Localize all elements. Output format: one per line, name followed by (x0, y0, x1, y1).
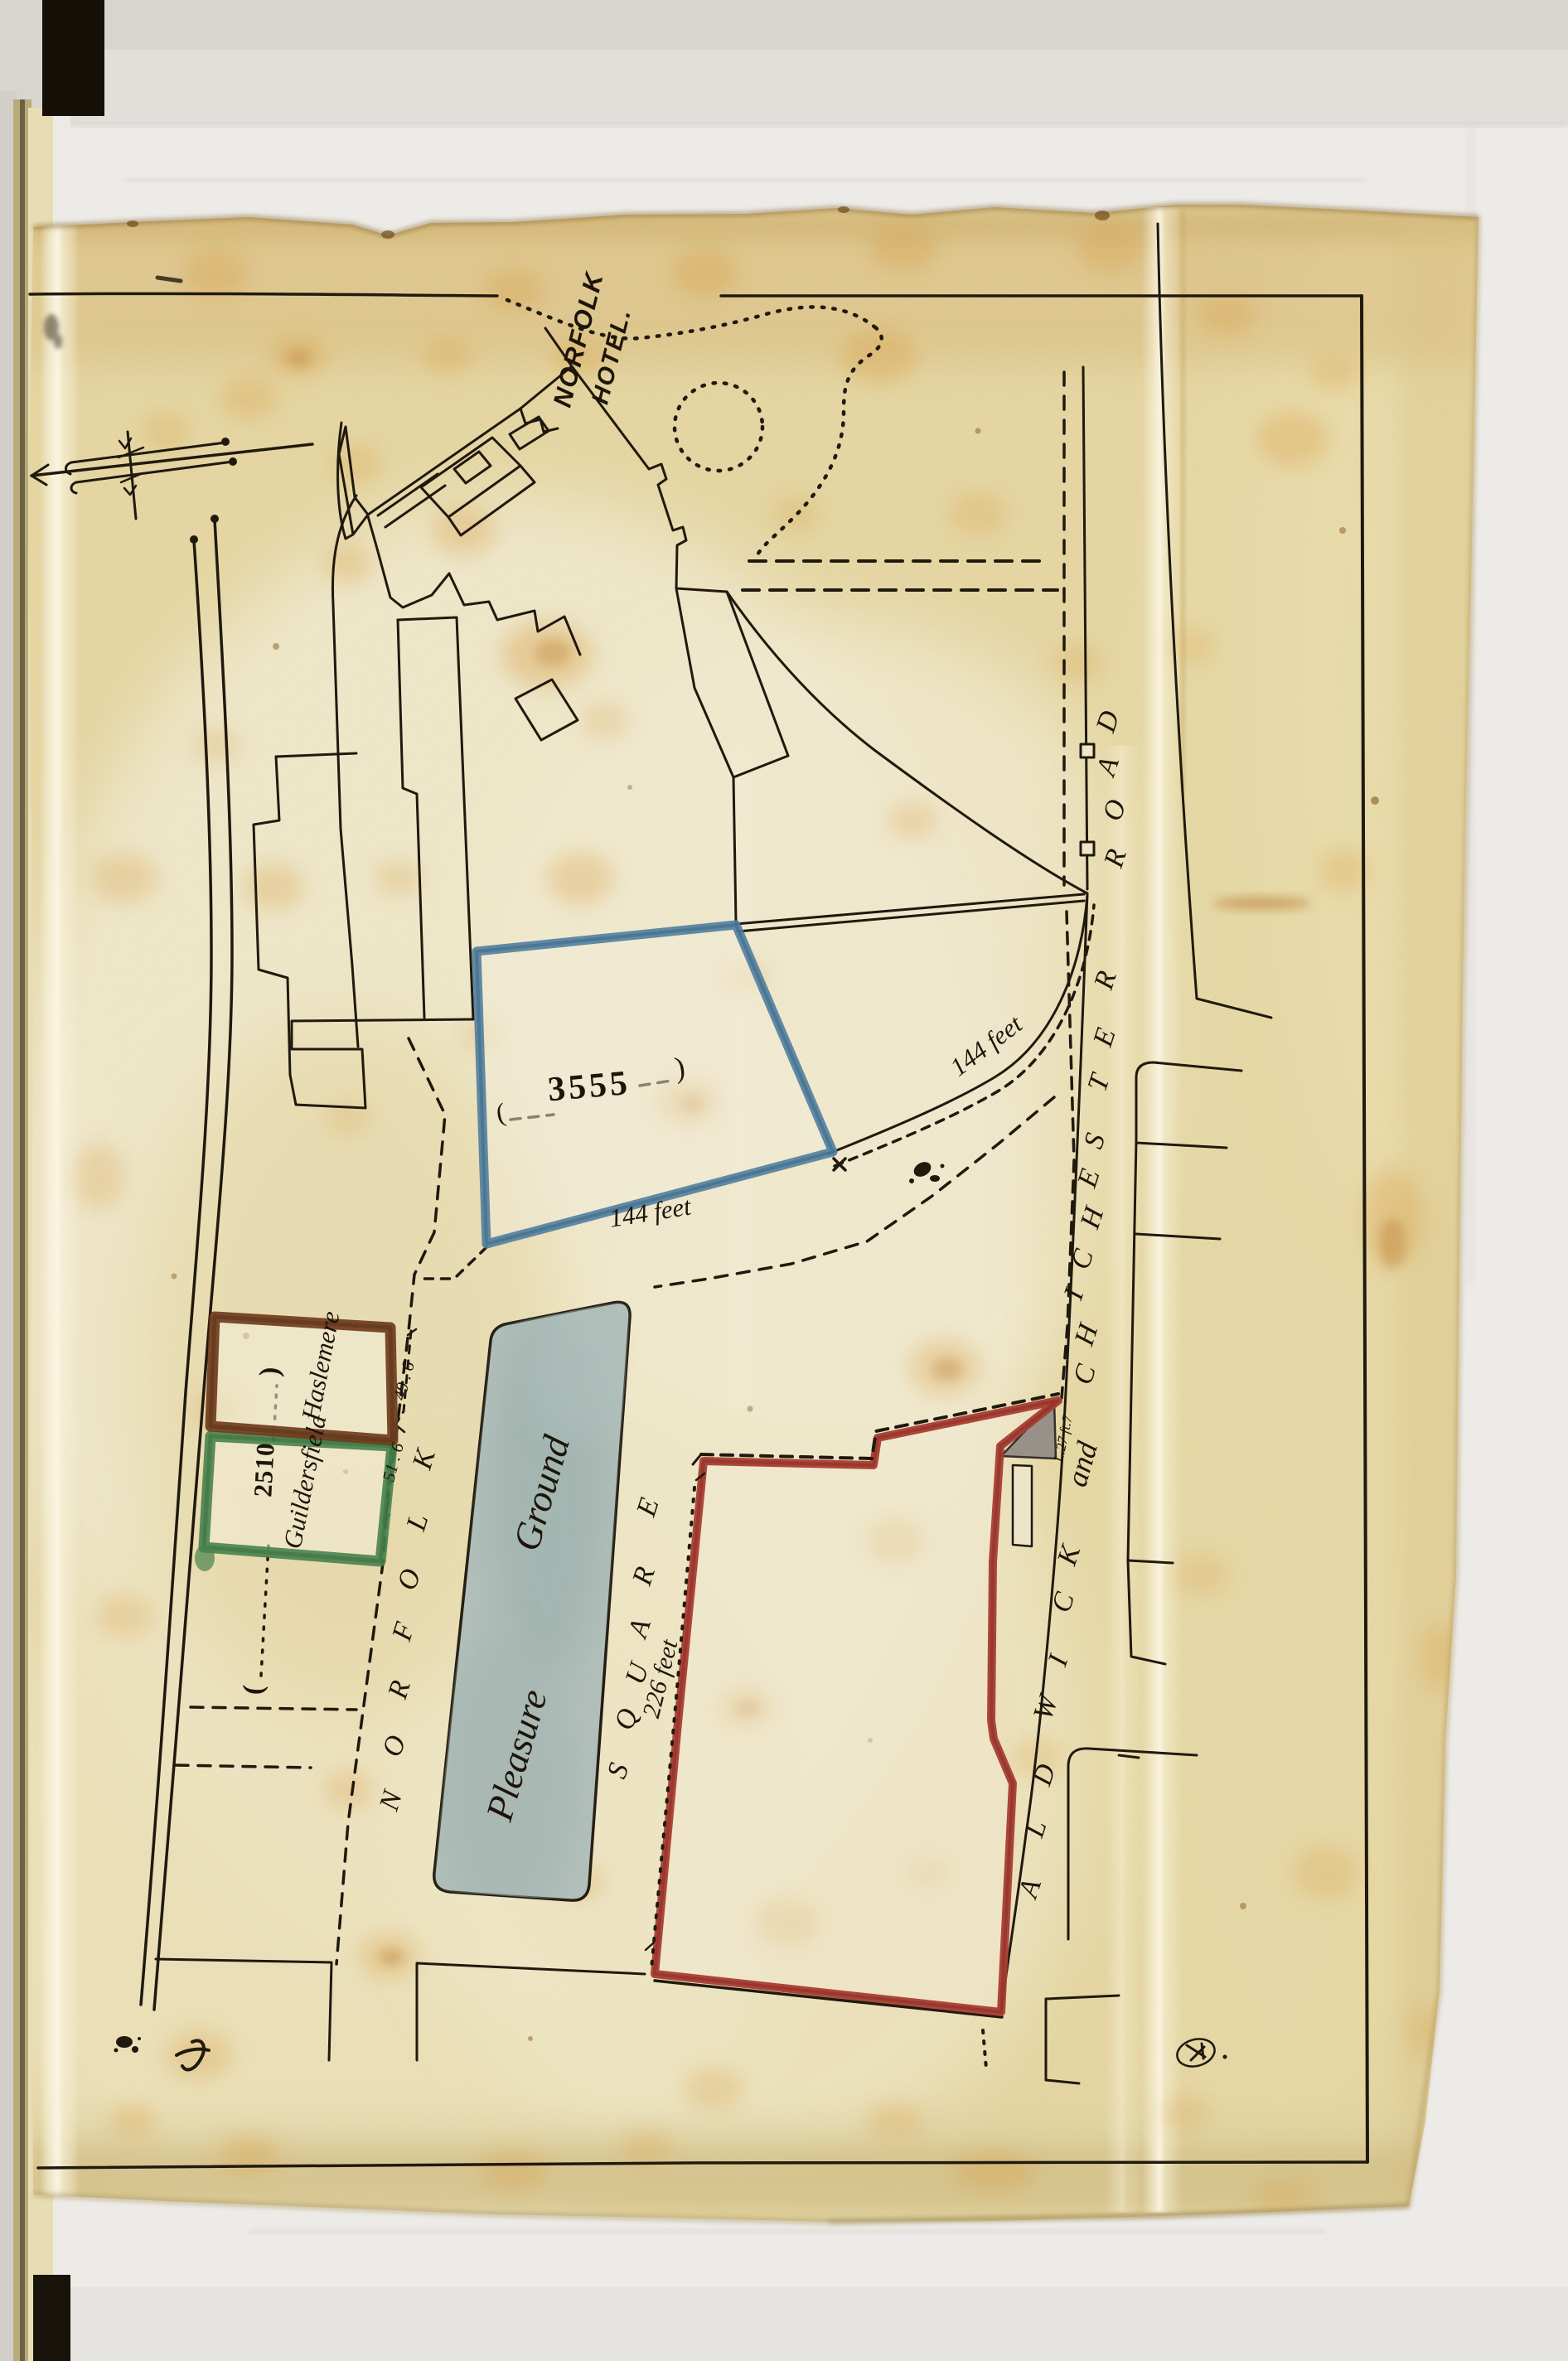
svg-text:2510: 2510 (248, 1442, 279, 1498)
svg-text:3555: 3555 (546, 1064, 632, 1110)
